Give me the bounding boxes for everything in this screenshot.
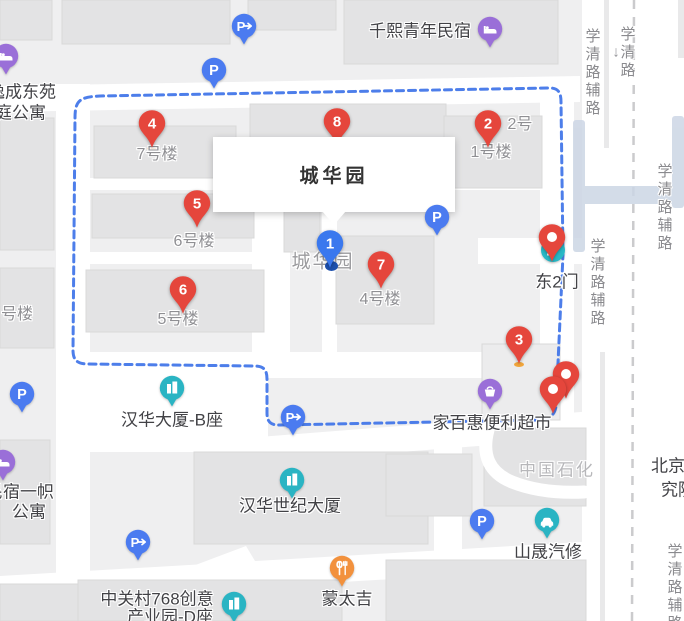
svg-text:P: P <box>209 63 219 79</box>
svg-text:5: 5 <box>193 196 201 213</box>
svg-text:6: 6 <box>179 282 187 299</box>
poi-label-beijing-2: 究院 <box>661 476 684 501</box>
compound-infobox[interactable]: 城华园 <box>213 137 455 212</box>
poi-label-beijing-1: 北京 <box>651 452 684 477</box>
hotel-icon[interactable] <box>477 16 503 49</box>
svg-text:8: 8 <box>333 114 341 131</box>
building-label: 6号楼 <box>174 227 215 251</box>
hotel-icon[interactable] <box>0 43 19 76</box>
road-label-xueqinglu-fulu: 学清路辅路 <box>657 163 672 253</box>
gate-pin[interactable] <box>537 223 567 263</box>
svg-text:4: 4 <box>148 116 157 133</box>
car-repair-icon[interactable] <box>534 507 560 540</box>
road-label-xueqinglu-fulu: 学清路辅路 <box>590 238 605 328</box>
parking-icon[interactable]: P <box>469 508 495 541</box>
marker-1[interactable]: 1 <box>315 229 345 269</box>
parking-exit-icon[interactable]: P <box>125 529 151 562</box>
office-building-icon[interactable] <box>221 591 247 621</box>
parking-exit-icon[interactable]: P <box>280 404 306 437</box>
poi-label-sinopec: 中国石化 <box>519 456 595 481</box>
svg-text:P: P <box>17 387 27 403</box>
poi-label-yicheng-2: 家庭公寓 <box>0 99 46 124</box>
infobox-title: 城华园 <box>299 161 368 188</box>
svg-text:P: P <box>477 514 487 530</box>
hotel-icon[interactable] <box>0 449 16 482</box>
poi-label-mengtaiji: 蒙太吉 <box>322 585 373 610</box>
svg-text:1: 1 <box>326 236 334 253</box>
svg-text:7: 7 <box>377 257 385 274</box>
poi-label-autorepair: 山晟汽修 <box>514 538 582 563</box>
marker-3[interactable]: 3 <box>504 325 534 365</box>
cluster-pin-front[interactable] <box>538 375 568 415</box>
parking-icon[interactable]: P <box>9 381 35 414</box>
road-label-xueqinglu: 学清路 <box>620 26 635 80</box>
marker-5[interactable]: 5 <box>182 189 212 229</box>
poi-label-qianxi: 千熙青年民宿 <box>369 17 471 42</box>
svg-text:P: P <box>432 210 442 226</box>
map-canvas[interactable]: 城华园 8 4 2 5 1 7 6 3 P PPPP P P <box>0 0 684 621</box>
marker-4[interactable]: 4 <box>137 109 167 149</box>
map-base <box>0 0 684 621</box>
poi-label-hanhua-b: 汉华大厦-B座 <box>121 406 223 431</box>
supermarket-icon[interactable] <box>477 378 503 411</box>
marker-2[interactable]: 2 <box>473 109 503 149</box>
office-building-icon[interactable] <box>159 375 185 408</box>
road-label-xueqinglu-fulu: 学清路辅路 <box>667 543 682 621</box>
office-building-icon[interactable] <box>279 467 305 500</box>
marker-6[interactable]: 6 <box>168 275 198 315</box>
parking-icon[interactable]: P <box>424 204 450 237</box>
parking-icon[interactable]: P <box>201 57 227 90</box>
poi-label-minsu-2: 公寓 <box>12 498 46 523</box>
poi-label-supermarket: 家百惠便利超市 <box>433 409 552 434</box>
building-label: 号楼 <box>1 300 33 324</box>
restaurant-icon[interactable] <box>329 555 355 588</box>
parking-exit-icon[interactable]: P <box>231 13 257 46</box>
marker-7[interactable]: 7 <box>366 250 396 290</box>
road-label-xueqinglu-fulu: 学清路辅路 <box>585 28 600 118</box>
building-label: 2号 <box>508 110 533 134</box>
svg-text:2: 2 <box>484 116 492 133</box>
poi-label-zgc768-2: 产业园-D座 <box>127 603 213 621</box>
poi-label-gate: 东2门 <box>535 268 578 293</box>
svg-text:3: 3 <box>515 332 523 349</box>
